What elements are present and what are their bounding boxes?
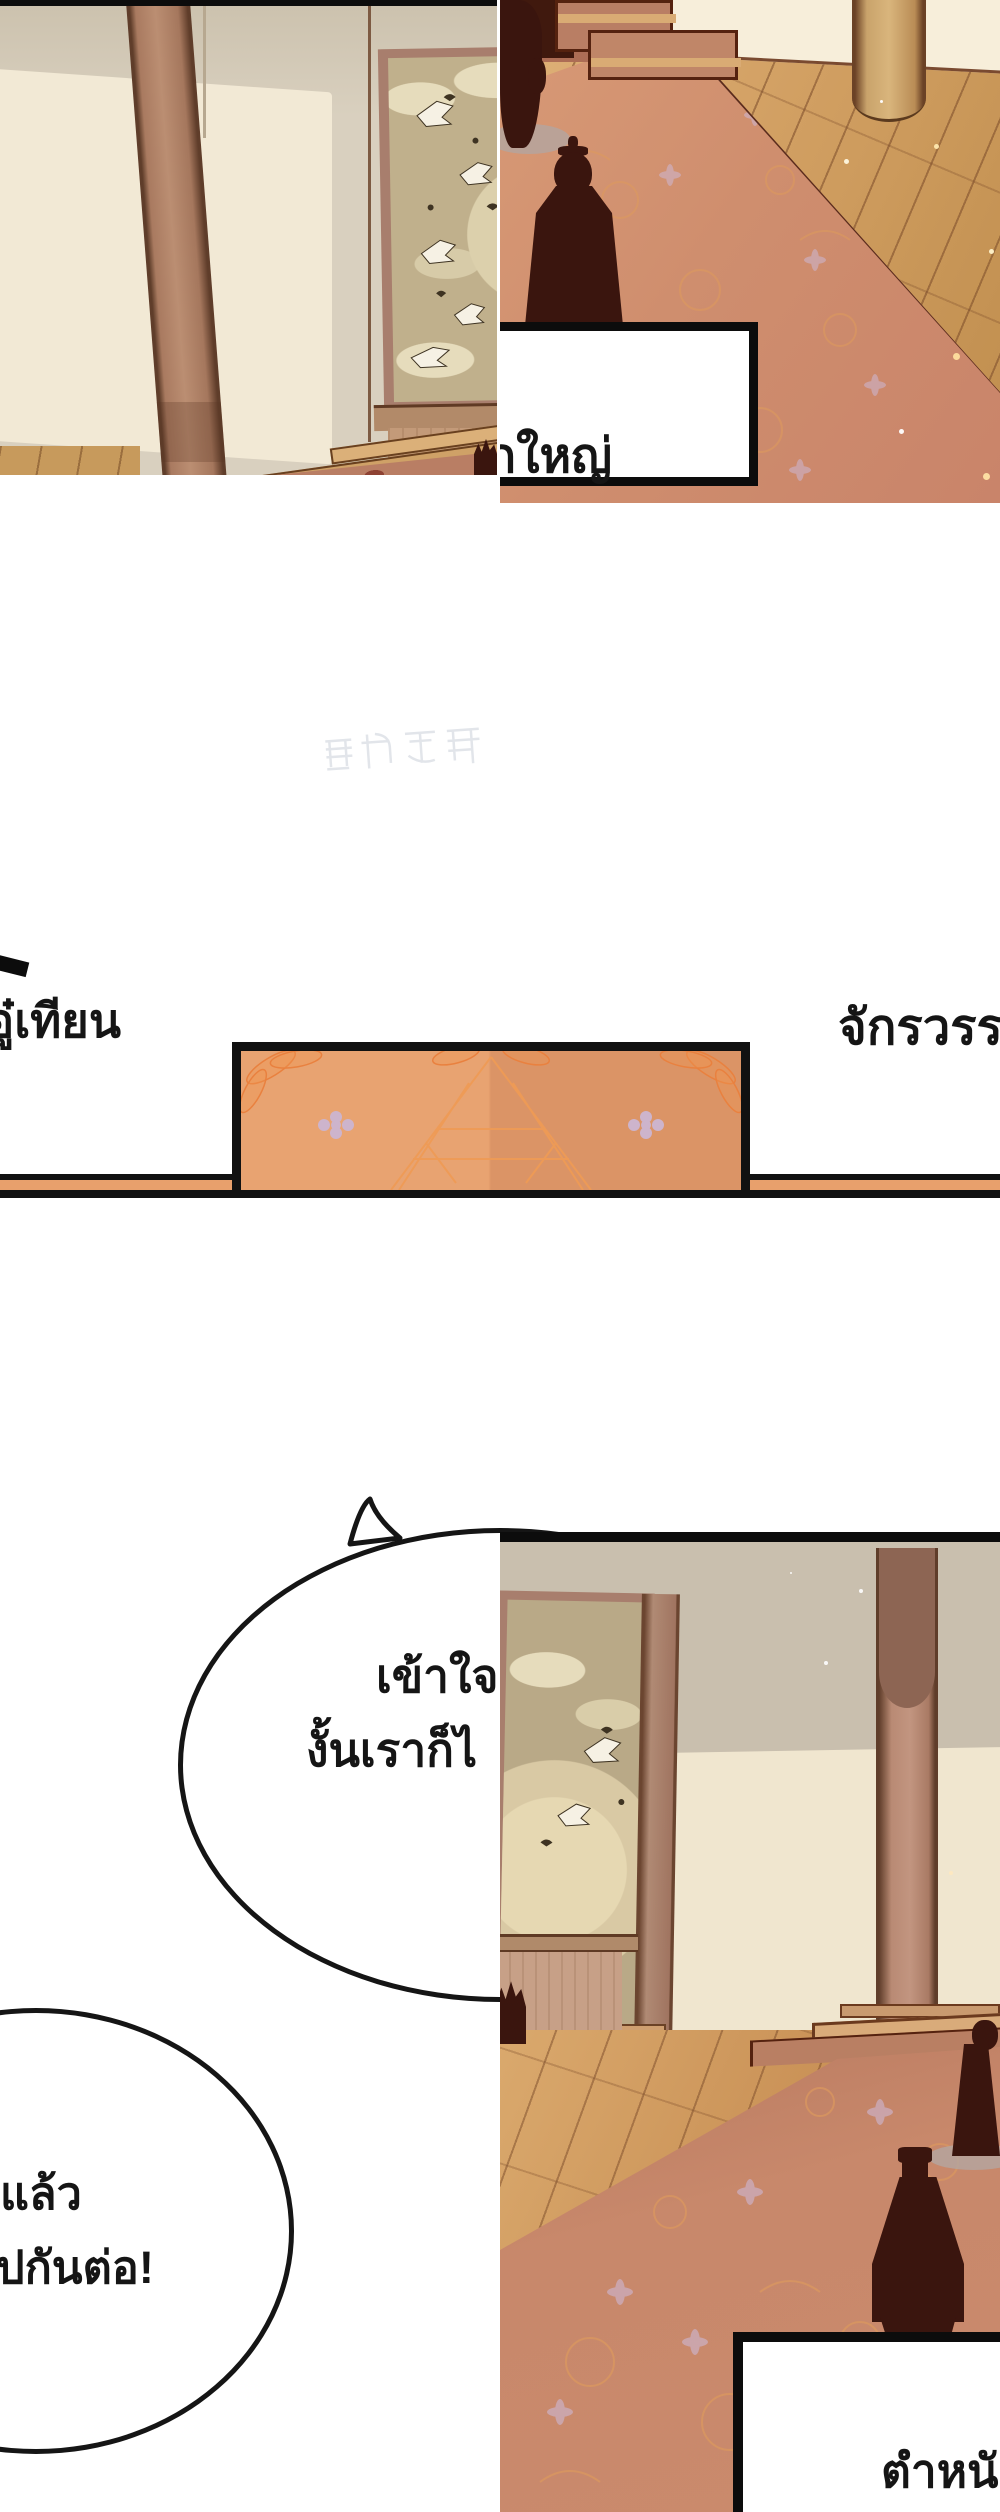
crane-painting-artwork bbox=[388, 56, 497, 402]
dust-sparkles bbox=[790, 1572, 792, 1574]
door-frame-line bbox=[368, 6, 371, 442]
clipped-bubble-corner bbox=[0, 954, 29, 977]
comic-page: กใหญ่ ิอู๋เทียน จักรวรรดิ bbox=[0, 0, 1000, 2512]
floor-planks-corner bbox=[0, 446, 140, 475]
panel-carpet-banner bbox=[232, 1042, 750, 1190]
speech-bubble-top: กใหญ่ bbox=[500, 322, 758, 486]
speech-text-understand-line2: งั้นเราก็ไ bbox=[306, 1724, 477, 1777]
panel-top-left bbox=[0, 0, 497, 475]
speech-bubble-tail bbox=[344, 1494, 404, 1548]
speech-text-continue-line2: ปกันต่อ! bbox=[0, 2242, 154, 2294]
panel-bottom-right: ตำหนัก bbox=[500, 1532, 1000, 2512]
speech-text-palace: ตำหนัก bbox=[881, 2445, 1000, 2498]
wall-seam bbox=[203, 6, 206, 138]
crane-flock-drawing bbox=[388, 56, 497, 402]
stair-tier-2 bbox=[588, 30, 738, 80]
crane-painting bbox=[378, 47, 497, 412]
banner-motif bbox=[241, 1051, 741, 1190]
caption-name-right: จักรวรรดิ bbox=[838, 1000, 1000, 1056]
floor-sparkles bbox=[880, 100, 883, 103]
hall-pillar bbox=[852, 0, 926, 122]
figure-silhouette-left-arm bbox=[528, 58, 546, 94]
strip-bottom-border bbox=[0, 1190, 1000, 1198]
speech-text-continue-line1: แล้ว bbox=[0, 2168, 82, 2220]
stair-tread-1 bbox=[558, 14, 676, 23]
panel-top-right: กใหญ่ bbox=[500, 0, 1000, 503]
speech-bubble-continue bbox=[0, 2008, 294, 2454]
tencent-comics-watermark bbox=[320, 718, 487, 779]
stair-tread-2 bbox=[591, 58, 741, 67]
hall-pillar-2 bbox=[876, 1548, 938, 2042]
sideboard-top-rail bbox=[500, 1934, 638, 1952]
screen-side-post bbox=[634, 1594, 680, 2045]
caption-name-left: ิอู๋เทียน bbox=[0, 994, 121, 1048]
speech-bubble-palace: ตำหนัก bbox=[733, 2332, 1000, 2512]
pillar-shadow-top bbox=[879, 1548, 935, 1708]
pillar-shadow-band bbox=[157, 402, 226, 462]
speech-text-understand-line1: เข้าใจ bbox=[376, 1650, 498, 1703]
speech-text-top: กใหญ่ bbox=[500, 429, 612, 484]
